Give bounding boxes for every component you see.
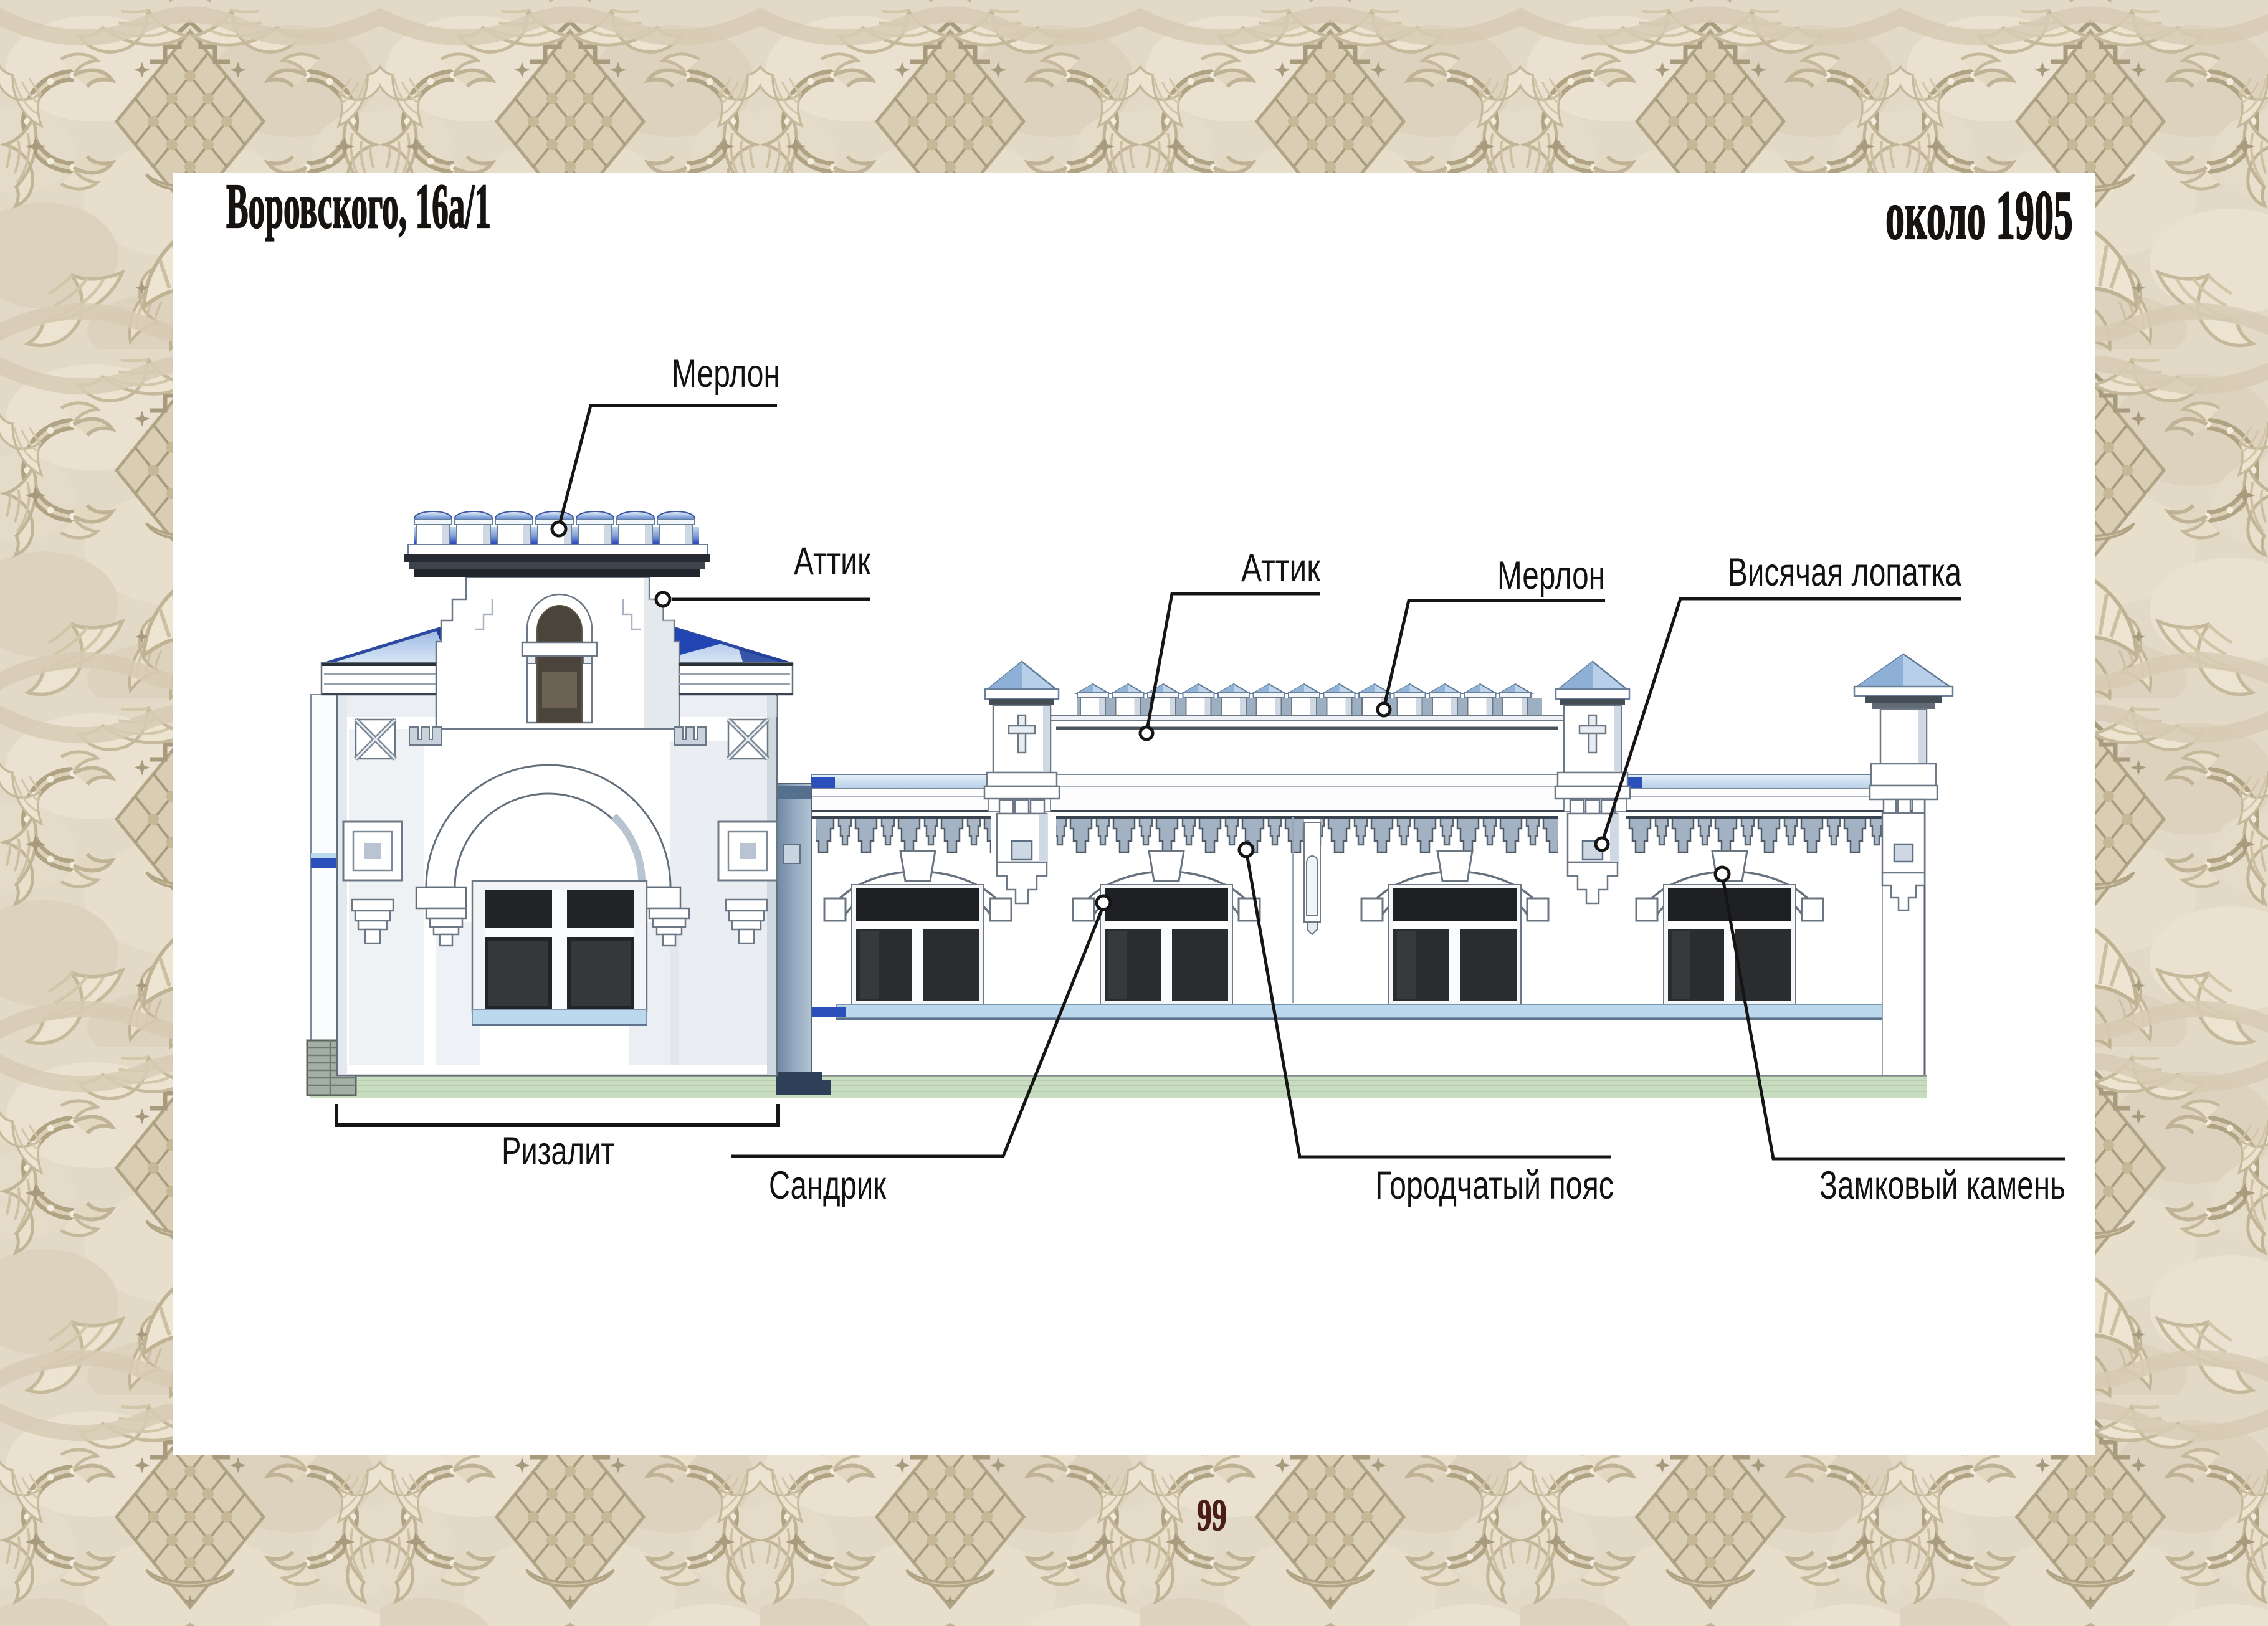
svg-text:99: 99 [1197,1490,1227,1540]
svg-text:Аттик: Аттик [794,540,870,583]
svg-text:Замковый камень: Замковый камень [1819,1164,2065,1207]
svg-text:Мерлон: Мерлон [1497,554,1605,597]
svg-text:Ризалит: Ризалит [502,1129,614,1173]
svg-text:Городчатый пояс: Городчатый пояс [1375,1164,1614,1207]
svg-text:Воровского, 16а/1: Воровского, 16а/1 [226,171,491,242]
svg-text:около 1905: около 1905 [1885,177,2073,254]
svg-text:Висячая лопатка: Висячая лопатка [1728,551,1962,594]
svg-text:Аттик: Аттик [1241,546,1320,590]
svg-text:Сандрик: Сандрик [769,1164,886,1207]
svg-text:Мерлон: Мерлон [672,352,780,396]
